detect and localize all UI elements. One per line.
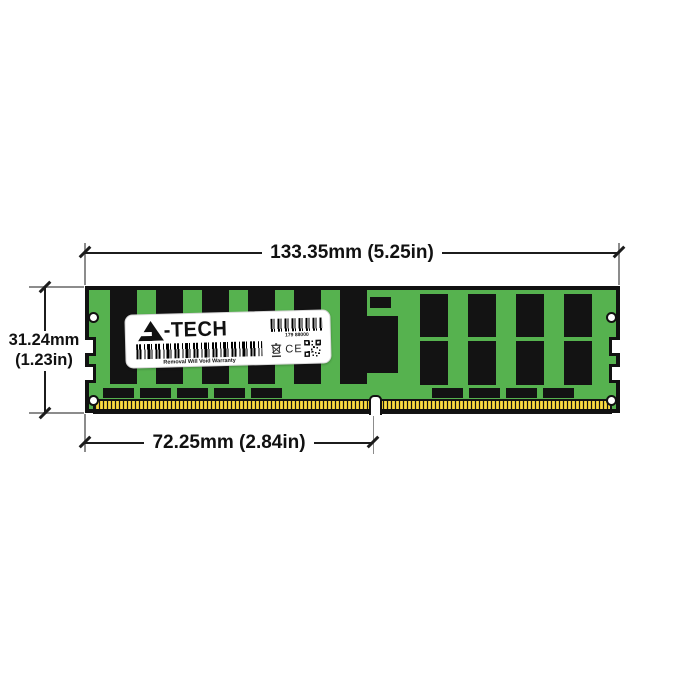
weee-icon xyxy=(270,342,282,358)
product-label: -TECH 179 88000 Removal Will Void Warran… xyxy=(124,309,331,368)
register-chip xyxy=(366,316,398,373)
pin-row xyxy=(93,399,612,414)
dimension-connector: 72.25mm (2.84in) xyxy=(85,434,373,451)
memory-chip xyxy=(420,341,448,385)
edge-notch xyxy=(609,337,620,356)
component-pad xyxy=(251,388,282,398)
mounting-hole xyxy=(606,395,617,406)
memory-chip xyxy=(564,294,592,337)
memory-chip xyxy=(516,294,544,337)
memory-chip xyxy=(516,341,544,385)
a-tech-logo: -TECH xyxy=(137,318,227,341)
serial-barcode xyxy=(270,318,322,332)
serial-number: 179 88000 xyxy=(271,332,323,339)
a-tech-triangle-icon xyxy=(138,321,165,342)
memory-chip xyxy=(468,341,496,385)
component-pad xyxy=(506,388,537,398)
edge-notch xyxy=(85,337,96,356)
pmic-component xyxy=(370,297,391,308)
component-pad xyxy=(140,388,171,398)
edge-notch xyxy=(85,364,96,383)
memory-module: -TECH 179 88000 Removal Will Void Warran… xyxy=(85,286,620,413)
pin-notch xyxy=(369,395,382,415)
mounting-hole xyxy=(88,395,99,406)
memory-chip xyxy=(468,294,496,337)
dimension-height-mm: 31.24mm xyxy=(4,331,84,351)
product-diagram: -TECH 179 88000 Removal Will Void Warran… xyxy=(0,0,700,700)
memory-chip xyxy=(340,290,367,384)
qr-code-icon xyxy=(304,340,321,357)
memory-chip xyxy=(420,294,448,337)
component-pad xyxy=(543,388,574,398)
brand-text: -TECH xyxy=(163,319,227,342)
memory-chip xyxy=(564,341,592,385)
dimension-height-label: 31.24mm (1.23in) xyxy=(4,331,84,371)
component-pad xyxy=(103,388,134,398)
dimension-height-in: (1.23in) xyxy=(4,351,84,371)
component-pad xyxy=(432,388,463,398)
dimension-connector-label: 72.25mm (2.84in) xyxy=(144,432,313,454)
extension-line xyxy=(29,412,84,414)
dimension-width: 133.35mm (5.25in) xyxy=(85,244,619,261)
mounting-hole xyxy=(606,312,617,323)
component-pad xyxy=(177,388,208,398)
ce-mark: CE xyxy=(285,343,303,355)
component-pad xyxy=(214,388,245,398)
dimension-width-label: 133.35mm (5.25in) xyxy=(262,242,442,264)
mounting-hole xyxy=(88,312,99,323)
edge-notch xyxy=(609,364,620,383)
component-pad xyxy=(469,388,500,398)
extension-line xyxy=(29,286,84,288)
